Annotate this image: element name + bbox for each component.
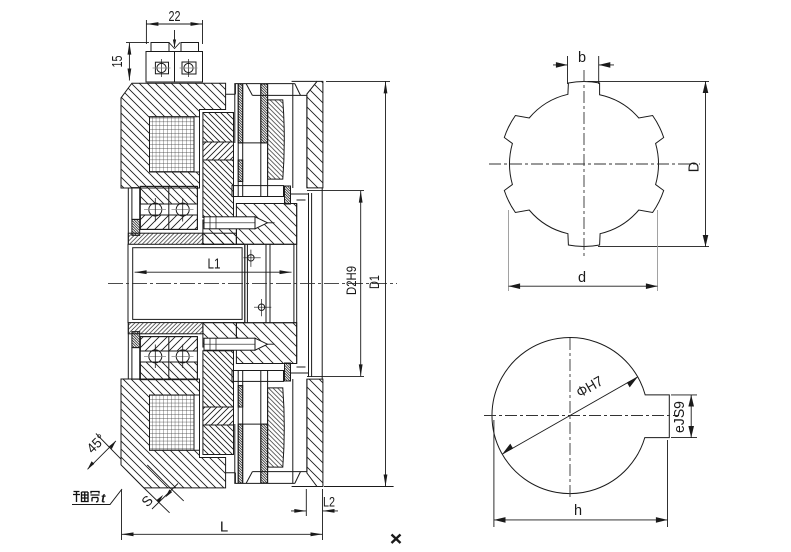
svg-text:t: t xyxy=(101,491,106,506)
svg-text:d: d xyxy=(578,270,586,286)
svg-text:L2: L2 xyxy=(323,494,335,510)
svg-text:eJS9: eJS9 xyxy=(672,401,688,433)
svg-text:b: b xyxy=(578,50,586,66)
svg-text:h: h xyxy=(574,503,582,519)
svg-text:L1: L1 xyxy=(208,256,221,273)
svg-text:D: D xyxy=(687,162,703,172)
svg-text:22: 22 xyxy=(169,8,181,25)
svg-text:D2H9: D2H9 xyxy=(343,266,359,295)
svg-text:15: 15 xyxy=(109,56,126,68)
svg-text:D1: D1 xyxy=(366,275,382,289)
svg-text:L: L xyxy=(220,519,228,536)
